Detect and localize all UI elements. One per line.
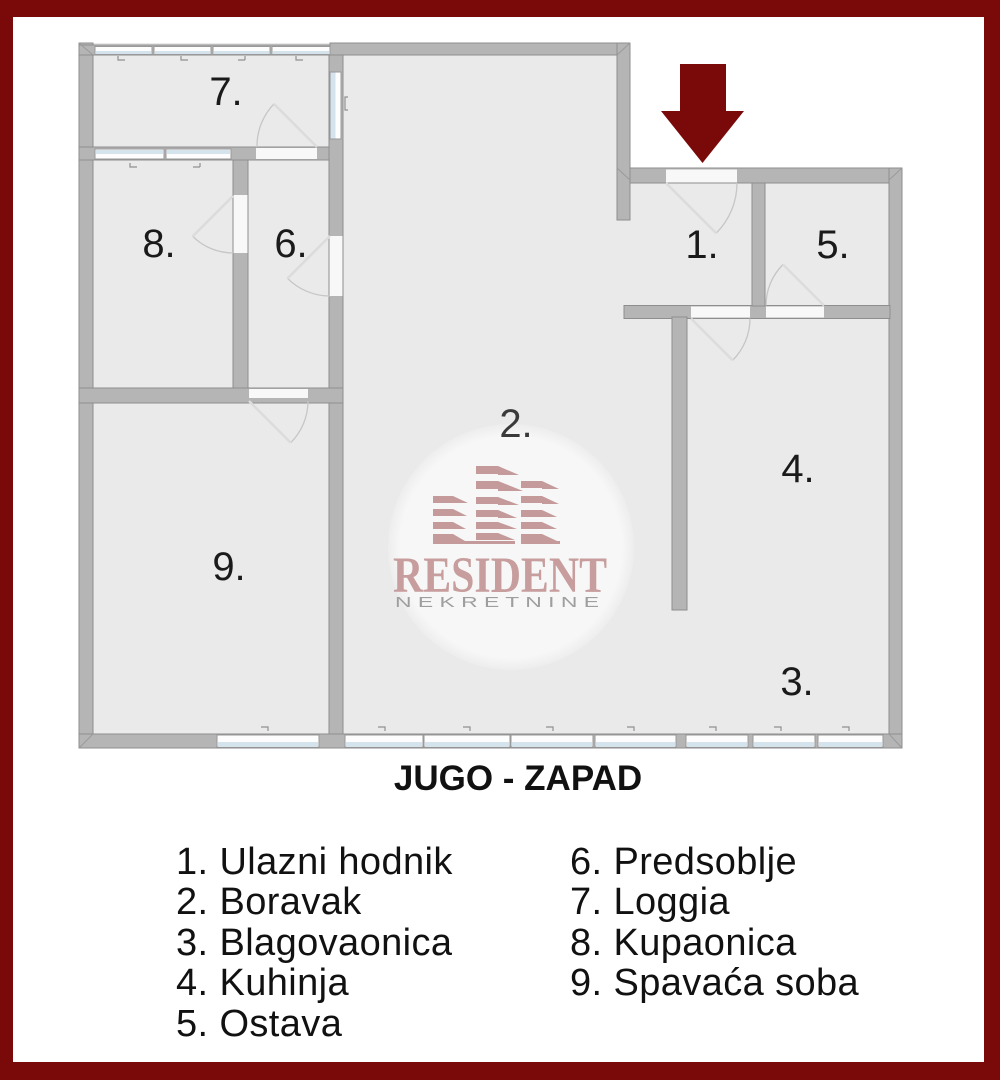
svg-text:3. Blagovaonica: 3. Blagovaonica	[176, 922, 453, 964]
svg-text:8. Kupaonica: 8. Kupaonica	[570, 922, 797, 964]
svg-text:9.: 9.	[212, 545, 245, 589]
svg-text:8.: 8.	[142, 222, 175, 266]
svg-text:6.: 6.	[274, 222, 307, 266]
svg-text:2.: 2.	[499, 402, 532, 446]
svg-text:5.: 5.	[816, 223, 849, 267]
svg-text:1.: 1.	[685, 223, 718, 267]
svg-text:N E K R E T N I N E: N E K R E T N I N E	[395, 595, 599, 611]
svg-text:4.: 4.	[781, 447, 814, 491]
svg-text:4. Kuhinja: 4. Kuhinja	[176, 962, 349, 1004]
svg-text:7. Loggia: 7. Loggia	[570, 881, 730, 923]
svg-text:5. Ostava: 5. Ostava	[176, 1003, 343, 1045]
svg-text:3.: 3.	[780, 660, 813, 704]
svg-text:JUGO - ZAPAD: JUGO - ZAPAD	[394, 759, 642, 798]
svg-text:1. Ulazni hodnik: 1. Ulazni hodnik	[176, 841, 453, 883]
svg-text:7.: 7.	[209, 70, 242, 114]
svg-text:6. Predsoblje: 6. Predsoblje	[570, 841, 797, 883]
svg-text:2. Boravak: 2. Boravak	[176, 881, 362, 923]
svg-text:9. Spavaća soba: 9. Spavaća soba	[570, 962, 860, 1004]
